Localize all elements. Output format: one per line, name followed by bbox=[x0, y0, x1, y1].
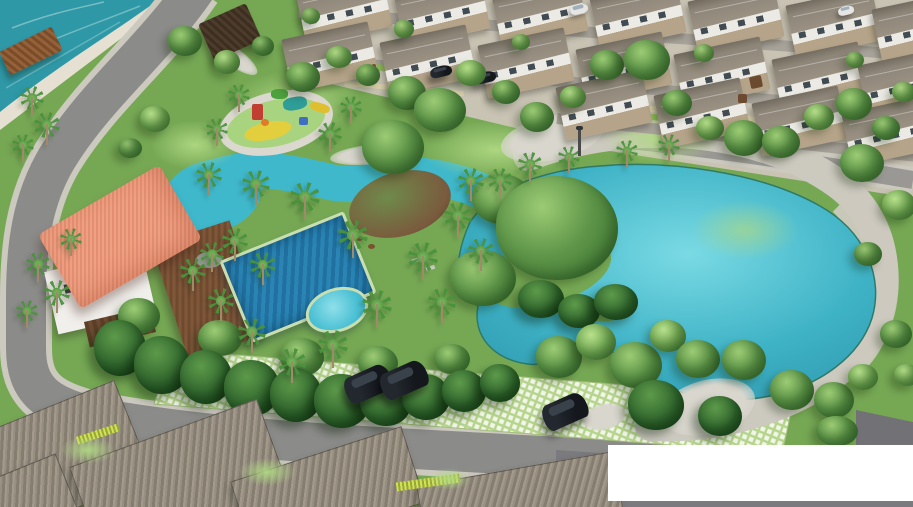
lawn-patch bbox=[238, 458, 296, 486]
tree bbox=[362, 120, 424, 174]
lawn-patch bbox=[60, 436, 116, 464]
tree bbox=[854, 242, 882, 266]
palm-tree bbox=[44, 280, 70, 306]
tree bbox=[492, 80, 520, 104]
palm-tree bbox=[518, 152, 542, 176]
palm-tree bbox=[318, 330, 348, 360]
palm-tree bbox=[444, 202, 472, 230]
tree bbox=[394, 20, 414, 38]
palm-tree bbox=[206, 118, 228, 140]
pergola-roof bbox=[0, 27, 63, 76]
tree bbox=[814, 382, 854, 418]
tree bbox=[286, 62, 320, 92]
play-item-blue bbox=[299, 117, 308, 125]
tree bbox=[882, 190, 913, 220]
palm-tree bbox=[658, 134, 680, 156]
tree bbox=[880, 320, 912, 348]
palm-tree bbox=[20, 86, 44, 110]
play-canopy-green bbox=[271, 89, 288, 99]
tree bbox=[140, 106, 170, 132]
tree bbox=[168, 26, 202, 56]
palm-tree bbox=[238, 318, 266, 346]
tree bbox=[214, 50, 240, 74]
lamp-post bbox=[578, 130, 581, 156]
tree bbox=[724, 120, 764, 156]
palm-tree bbox=[16, 300, 38, 322]
tree bbox=[302, 8, 320, 24]
tree bbox=[892, 82, 913, 102]
tree bbox=[894, 364, 913, 386]
sprite-layer bbox=[0, 0, 913, 507]
palm-tree bbox=[340, 96, 362, 118]
palm-tree bbox=[278, 348, 306, 376]
palm-tree bbox=[338, 220, 368, 250]
tree bbox=[846, 52, 864, 68]
tree bbox=[496, 176, 618, 280]
tree bbox=[840, 144, 884, 182]
palm-tree bbox=[208, 288, 234, 314]
palm-tree bbox=[558, 146, 580, 168]
palm-tree bbox=[12, 134, 34, 156]
palm-tree bbox=[26, 252, 50, 276]
palm-tree bbox=[34, 112, 60, 138]
lawn-patch bbox=[690, 200, 800, 260]
palm-tree bbox=[488, 168, 512, 192]
parked-suv bbox=[538, 390, 591, 433]
palm-tree bbox=[428, 288, 456, 316]
tree bbox=[848, 364, 878, 390]
play-tower bbox=[252, 104, 263, 120]
pool-table bbox=[368, 244, 375, 249]
tree bbox=[676, 340, 720, 378]
tree bbox=[762, 126, 800, 158]
play-item-orange bbox=[261, 119, 269, 126]
palm-tree bbox=[196, 162, 222, 188]
tree bbox=[512, 34, 530, 50]
tree bbox=[804, 104, 834, 130]
bin bbox=[749, 75, 763, 89]
tree bbox=[118, 138, 142, 158]
bin bbox=[738, 94, 747, 103]
palm-tree bbox=[318, 122, 342, 146]
palm-tree bbox=[228, 84, 250, 106]
tree bbox=[694, 44, 714, 62]
palm-tree bbox=[468, 238, 494, 264]
tree bbox=[662, 90, 692, 116]
palm-tree bbox=[408, 242, 438, 272]
palm-tree bbox=[458, 168, 484, 194]
tree bbox=[722, 340, 766, 380]
tree bbox=[456, 60, 486, 86]
tree bbox=[326, 46, 352, 68]
palm-tree bbox=[60, 228, 82, 250]
tree bbox=[872, 116, 900, 140]
tree bbox=[576, 324, 616, 360]
palm-tree bbox=[242, 170, 270, 198]
tree bbox=[816, 416, 858, 446]
blank-watermark-box bbox=[608, 445, 913, 501]
palm-tree bbox=[290, 182, 320, 212]
palm-tree bbox=[200, 242, 224, 266]
palm-tree bbox=[222, 228, 248, 254]
tree bbox=[836, 88, 872, 120]
tree bbox=[590, 50, 624, 80]
lawn-patch bbox=[428, 468, 470, 490]
tree bbox=[480, 364, 520, 402]
tree bbox=[414, 88, 466, 132]
tree bbox=[770, 370, 814, 410]
palm-tree bbox=[362, 290, 392, 320]
palm-tree bbox=[250, 252, 276, 278]
tree bbox=[560, 86, 586, 108]
tree bbox=[624, 40, 670, 80]
aerial-render-canvas bbox=[0, 0, 913, 507]
tree bbox=[698, 396, 742, 436]
palm-tree bbox=[616, 140, 638, 162]
tree bbox=[356, 64, 380, 86]
tree bbox=[628, 380, 684, 430]
tree bbox=[520, 102, 554, 132]
tree bbox=[594, 284, 638, 320]
tree bbox=[252, 36, 274, 56]
tree bbox=[442, 370, 486, 412]
tree bbox=[696, 116, 724, 140]
